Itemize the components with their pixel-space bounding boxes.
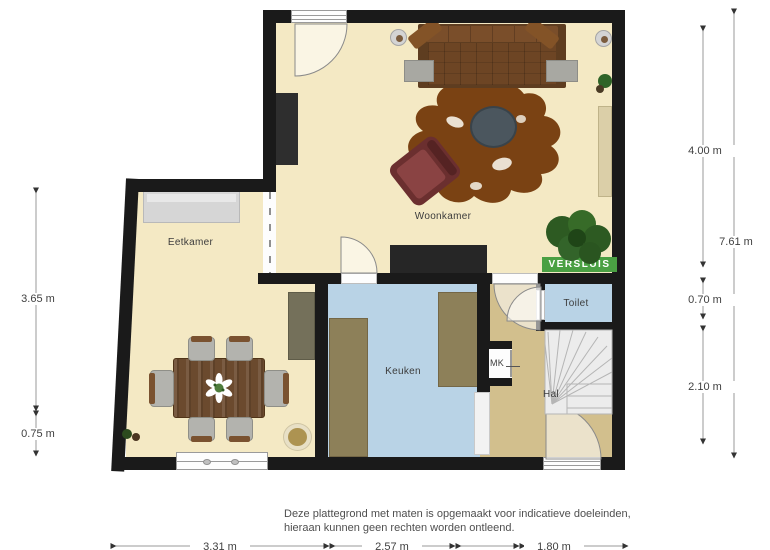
lamp-core bbox=[396, 35, 403, 42]
dining-chair bbox=[188, 417, 215, 441]
wall-divider-b bbox=[377, 273, 492, 284]
dim-right-middle: 0.70 m bbox=[675, 294, 735, 306]
dining-chair bbox=[188, 337, 215, 361]
dim-right-total: 7.61 m bbox=[706, 236, 766, 248]
floor-plan: VERSLUIS bbox=[0, 0, 770, 550]
room-label-keuken: Keuken bbox=[363, 366, 443, 377]
coffee-table bbox=[470, 106, 517, 148]
lamp-core bbox=[601, 36, 608, 43]
wall-lamp-right bbox=[595, 30, 612, 47]
wall-lamp-left bbox=[390, 29, 407, 46]
dim-bottom-left: 3.31 m bbox=[190, 541, 250, 550]
basket-core bbox=[288, 428, 307, 446]
disclaimer-text: Deze plattegrond met maten is opgemaakt … bbox=[284, 507, 704, 535]
dining-chair bbox=[226, 337, 253, 361]
dining-table bbox=[173, 358, 265, 418]
window-handle bbox=[231, 459, 239, 465]
disclaimer-line-2: hieraan kunnen geen rechten worden ontle… bbox=[284, 521, 704, 535]
dim-right-lower: 2.10 m bbox=[675, 381, 735, 393]
dim-right-upper: 4.00 m bbox=[675, 145, 735, 157]
hal-door-opening bbox=[492, 273, 538, 284]
room-label-toilet: Toilet bbox=[546, 298, 606, 309]
wall-toilet-top bbox=[538, 273, 612, 284]
mk-door-line bbox=[510, 350, 512, 377]
dim-left-upper: 3.65 m bbox=[8, 293, 68, 305]
room-label-eetkamer: Eetkamer bbox=[148, 237, 233, 248]
basket bbox=[283, 423, 312, 451]
dining-chair bbox=[264, 370, 288, 407]
wall-woonkamer-left bbox=[263, 10, 276, 192]
room-label-mk: MK bbox=[484, 358, 510, 368]
dim-bottom-right: 1.80 m bbox=[524, 541, 584, 550]
room-label-hal: Hal bbox=[529, 389, 573, 400]
open-passage-dashed bbox=[263, 192, 276, 273]
wall-eetkamer-top bbox=[126, 179, 276, 192]
keuken-doorway bbox=[474, 392, 490, 455]
wall-eetkamer-keuken bbox=[315, 273, 328, 457]
watermark-text: VERSLUIS bbox=[548, 259, 610, 270]
dim-bottom-middle: 2.57 m bbox=[362, 541, 422, 550]
dim-left-lower: 0.75 m bbox=[8, 428, 68, 440]
side-table-left bbox=[404, 60, 434, 82]
sideboard-right bbox=[598, 106, 612, 197]
front-door-opening bbox=[543, 457, 601, 470]
eetkamer-sideboard bbox=[143, 190, 240, 223]
wall-toilet-bottom bbox=[536, 322, 612, 331]
side-table-right bbox=[546, 60, 578, 82]
sofa-seat bbox=[428, 43, 556, 85]
sideboard-top bbox=[147, 194, 236, 202]
room-label-woonkamer: Woonkamer bbox=[398, 211, 488, 222]
tv-cabinet bbox=[390, 245, 487, 274]
dining-chair bbox=[150, 370, 174, 407]
balcony-door-opening bbox=[291, 10, 347, 23]
eetkamer-window bbox=[176, 452, 268, 470]
wall-divider-a bbox=[258, 273, 341, 284]
dining-chair bbox=[226, 417, 253, 441]
window-handle bbox=[203, 459, 211, 465]
keuken-door-opening bbox=[341, 273, 377, 284]
radiator bbox=[274, 93, 298, 165]
watermark-banner: VERSLUIS bbox=[542, 257, 617, 272]
tall-cabinet bbox=[288, 292, 315, 360]
kitchen-counter-left bbox=[329, 318, 368, 457]
toilet-door-opening bbox=[536, 290, 545, 320]
wall-right bbox=[612, 10, 625, 470]
kitchen-counter-right bbox=[438, 292, 481, 387]
disclaimer-line-1: Deze plattegrond met maten is opgemaakt … bbox=[284, 507, 704, 521]
mk-wall-bottom bbox=[483, 377, 512, 386]
